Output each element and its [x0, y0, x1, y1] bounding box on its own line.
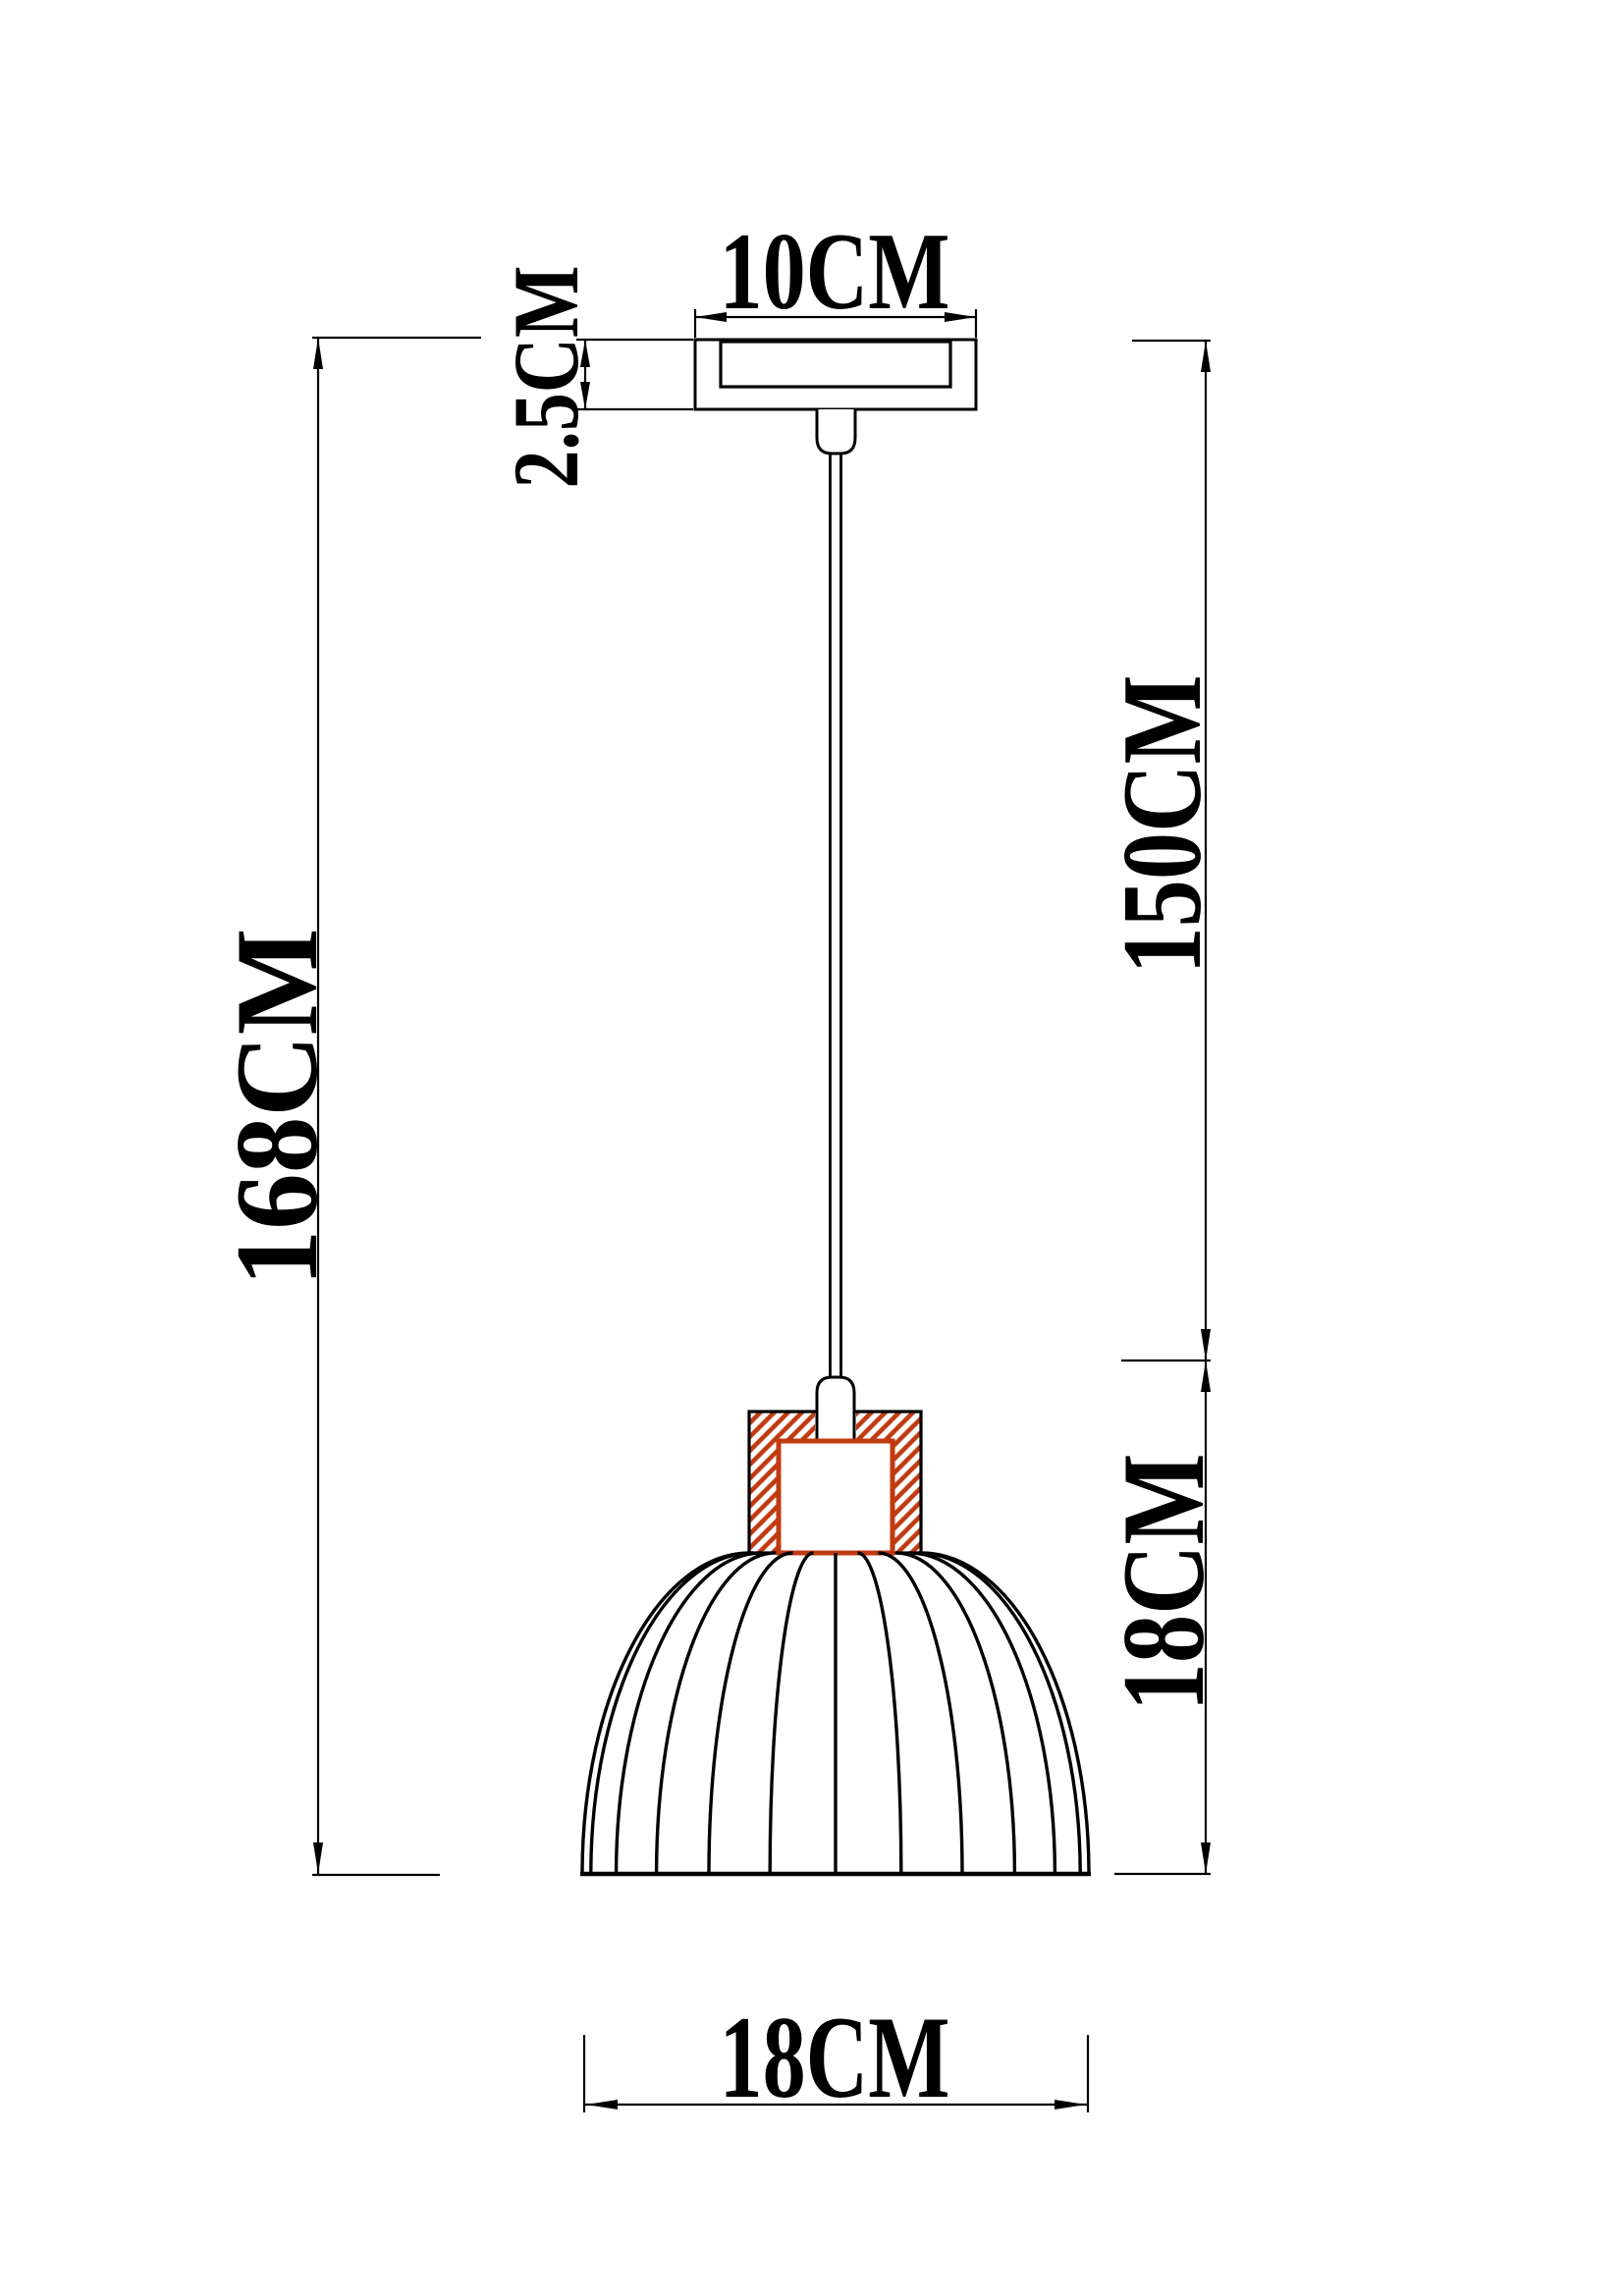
technical-drawing-page: 10CM 2.5CM 168CM 150CM 18CM	[0, 0, 1623, 2296]
canopy-outer-plate	[695, 340, 976, 409]
canopy-cord-grip	[817, 409, 855, 454]
shade-width-label: 18CM	[720, 1992, 950, 2122]
shade-rib	[896, 1553, 1015, 1874]
socket-holder	[749, 1377, 921, 1553]
dimension-canopy-height: 2.5CM	[494, 266, 693, 489]
arrowhead-left	[586, 2100, 618, 2109]
dimension-shade-height: 18CM	[1098, 1361, 1228, 1874]
lamp-shade	[580, 1553, 1091, 1874]
arrowhead-down	[313, 1842, 323, 1874]
shade-rib	[879, 1553, 963, 1874]
shade-rib	[770, 1553, 813, 1874]
dimension-total-height: 168CM	[211, 338, 481, 1875]
shade-rib	[858, 1553, 901, 1874]
canopy-height-label: 2.5CM	[494, 266, 598, 489]
arrowhead-right	[1055, 2100, 1086, 2109]
shade-rib	[709, 1553, 793, 1874]
dimension-shade-width: 18CM	[584, 1992, 1088, 2122]
suspension-cord	[831, 447, 841, 1384]
arrowhead-down	[1201, 1842, 1211, 1874]
arrowhead-up	[1201, 341, 1211, 372]
cord-drop-label: 150CM	[1100, 675, 1224, 975]
pendant-lamp-dimension-drawing: 10CM 2.5CM 168CM 150CM 18CM	[0, 0, 1623, 2296]
socket-inner-square	[779, 1441, 893, 1553]
total-height-label: 168CM	[211, 929, 342, 1287]
arrowhead-down	[1201, 1329, 1211, 1361]
shade-rib	[617, 1553, 762, 1874]
arrowhead-up	[1201, 1361, 1211, 1392]
canopy-width-label: 10CM	[720, 211, 950, 333]
shade-rib	[909, 1553, 1055, 1874]
dimension-cord-drop: 150CM	[1100, 341, 1224, 1361]
shade-rib	[657, 1553, 776, 1874]
arrowhead-up	[313, 338, 323, 369]
shade-height-label: 18CM	[1098, 1454, 1228, 1712]
dimension-canopy-width: 10CM	[695, 211, 976, 338]
socket-cord-grip	[817, 1377, 854, 1441]
ceiling-canopy	[695, 340, 976, 454]
